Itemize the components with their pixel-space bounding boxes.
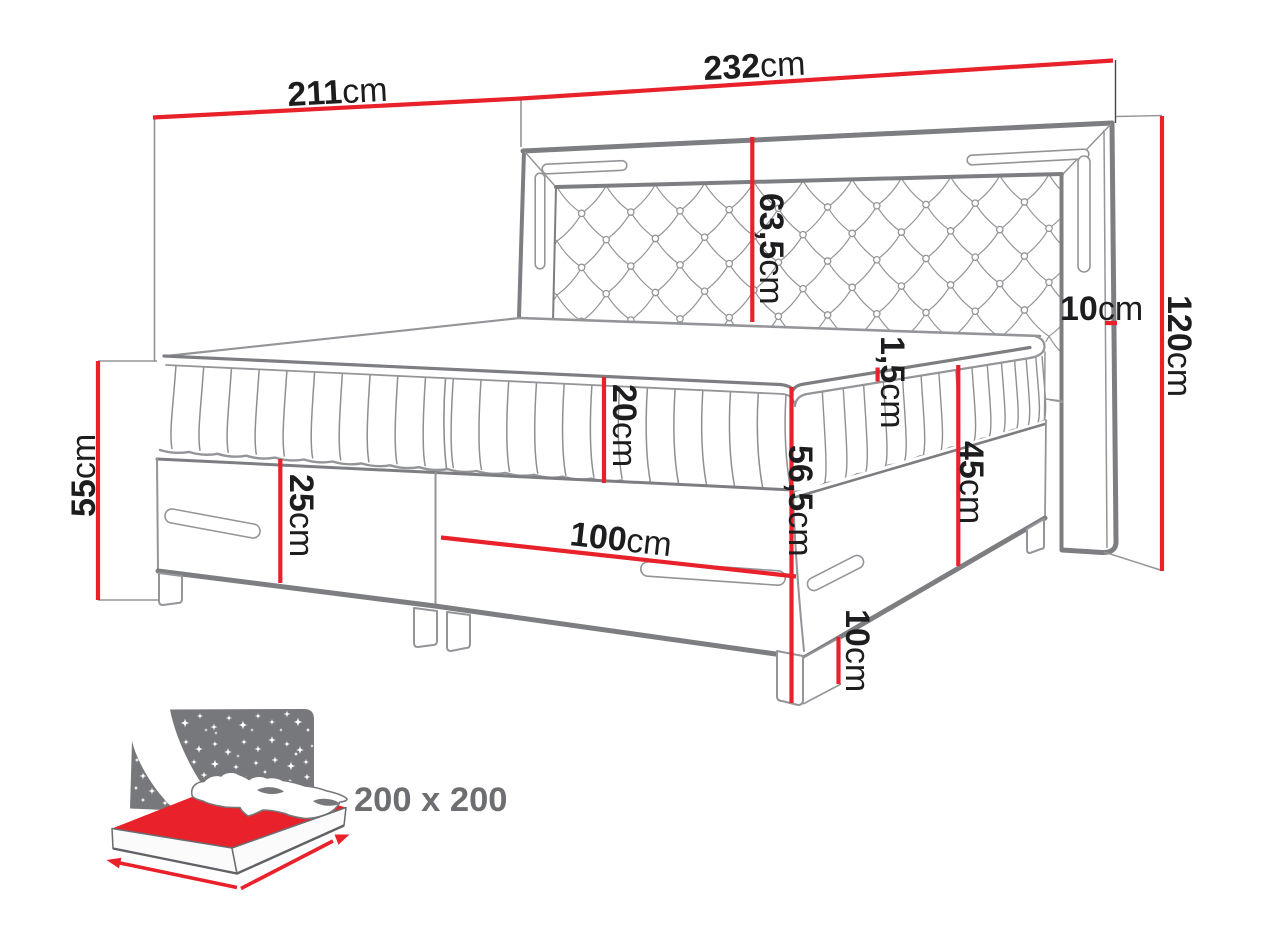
svg-text:55cm: 55cm <box>65 434 103 517</box>
svg-text:232cm: 232cm <box>702 45 806 88</box>
svg-text:25cm: 25cm <box>282 474 320 557</box>
svg-text:1,5cm: 1,5cm <box>873 336 911 429</box>
svg-text:63,5cm: 63,5cm <box>752 193 790 305</box>
svg-text:45cm: 45cm <box>952 441 990 524</box>
svg-text:211cm: 211cm <box>286 71 388 114</box>
svg-text:120cm: 120cm <box>1160 295 1198 397</box>
svg-text:20cm: 20cm <box>605 384 643 467</box>
svg-text:10cm: 10cm <box>838 609 876 692</box>
svg-text:56,5cm: 56,5cm <box>781 445 819 557</box>
svg-text:200 x 200: 200 x 200 <box>354 781 507 819</box>
svg-text:10cm: 10cm <box>1060 290 1143 328</box>
